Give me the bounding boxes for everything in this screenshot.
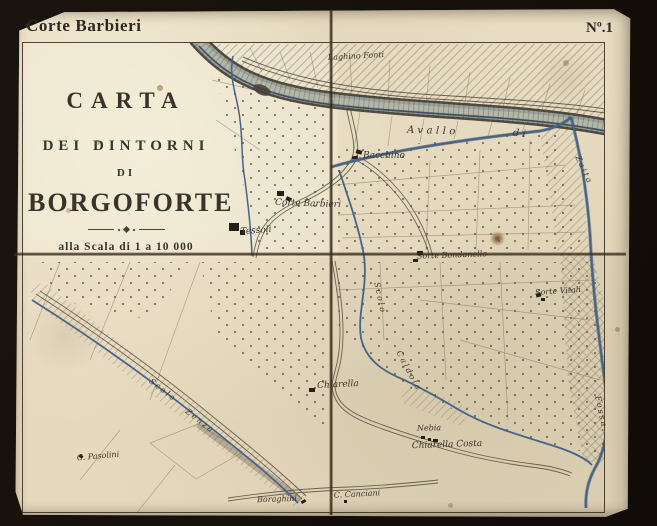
building-marker — [277, 191, 284, 196]
building-marker — [421, 436, 425, 439]
map-label: di — [512, 128, 530, 140]
title-scale: alla Scala di 1 a 10 000 — [28, 241, 224, 253]
building-marker — [344, 500, 347, 503]
building-marker — [229, 223, 239, 231]
map-photo: Corte Barbieri Nº.1 CARTA DEI DINTORNI D… — [0, 0, 657, 526]
sheet-header-title: Corte Barbieri — [26, 16, 142, 36]
title-line-dei-dintorni: DEI DINTORNI — [28, 138, 224, 155]
title-line-carta: CARTA — [28, 88, 224, 114]
title-line-borgoforte: BORGOFORTE — [28, 188, 224, 218]
map-label: Avallo — [407, 125, 459, 138]
title-block: CARTA DEI DINTORNI DI BORGOFORTE alla Sc… — [28, 88, 224, 253]
map-label: Nebia — [417, 423, 441, 433]
map-label: Bacchino — [363, 151, 405, 161]
title-line-di: DI — [28, 167, 224, 179]
map-label: Boraghini — [257, 494, 297, 504]
title-ornament — [28, 227, 224, 232]
building-marker — [541, 298, 545, 301]
map-label: Tessoli — [240, 225, 272, 237]
building-marker — [309, 388, 315, 392]
sheet-number: Nº.1 — [586, 20, 613, 37]
